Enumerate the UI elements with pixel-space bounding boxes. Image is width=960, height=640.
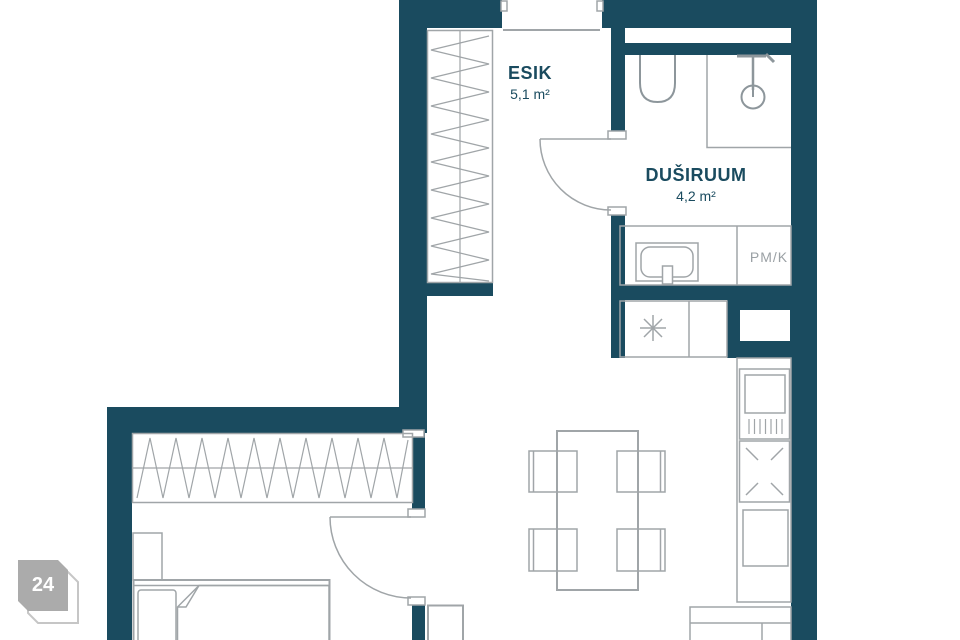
toilet — [640, 55, 675, 102]
nightstand — [133, 533, 162, 580]
oven — [740, 369, 790, 439]
bathroom-door — [540, 139, 611, 210]
stove-asterisk-icon — [640, 315, 666, 341]
dining-table — [557, 431, 638, 590]
bedroom-wardrobe — [133, 434, 413, 503]
pillow — [138, 590, 176, 640]
fridge — [743, 510, 788, 566]
room-label-dushiruum: DUŠIRUUM 4,2 m² — [646, 166, 747, 205]
room-area-esik: 5,1 m² — [508, 86, 552, 103]
dining-set — [529, 431, 665, 590]
kitchen-counter-top — [620, 301, 727, 357]
shower-head-icon — [737, 54, 774, 109]
room-name-esik: ESIK — [508, 64, 552, 84]
room-area-dushiruum: 4,2 m² — [646, 188, 747, 205]
unit-badge[interactable]: 24 — [14, 556, 96, 636]
shower-enclosure — [707, 55, 791, 148]
pmk-label: PM/K — [750, 249, 788, 265]
room-name-dushiruum: DUŠIRUUM — [646, 166, 747, 186]
bed — [133, 580, 330, 640]
walls — [107, 0, 817, 640]
kitchen-counter-bottom — [690, 607, 791, 640]
kitchen-appliance-column — [737, 358, 791, 602]
bedroom-door — [330, 517, 411, 598]
room-label-esik: ESIK 5,1 m² — [508, 64, 552, 103]
wall-niche — [740, 310, 790, 341]
floor-plan-drawing — [0, 0, 960, 640]
hall-cabinet — [428, 606, 463, 640]
unit-badge-number: 24 — [18, 560, 68, 611]
floor-plan: ESIK 5,1 m² DUŠIRUUM 4,2 m² PM/K 24 — [0, 0, 960, 640]
blanket — [178, 586, 330, 640]
hall-wardrobe — [428, 31, 493, 284]
hob-unit — [740, 441, 790, 502]
